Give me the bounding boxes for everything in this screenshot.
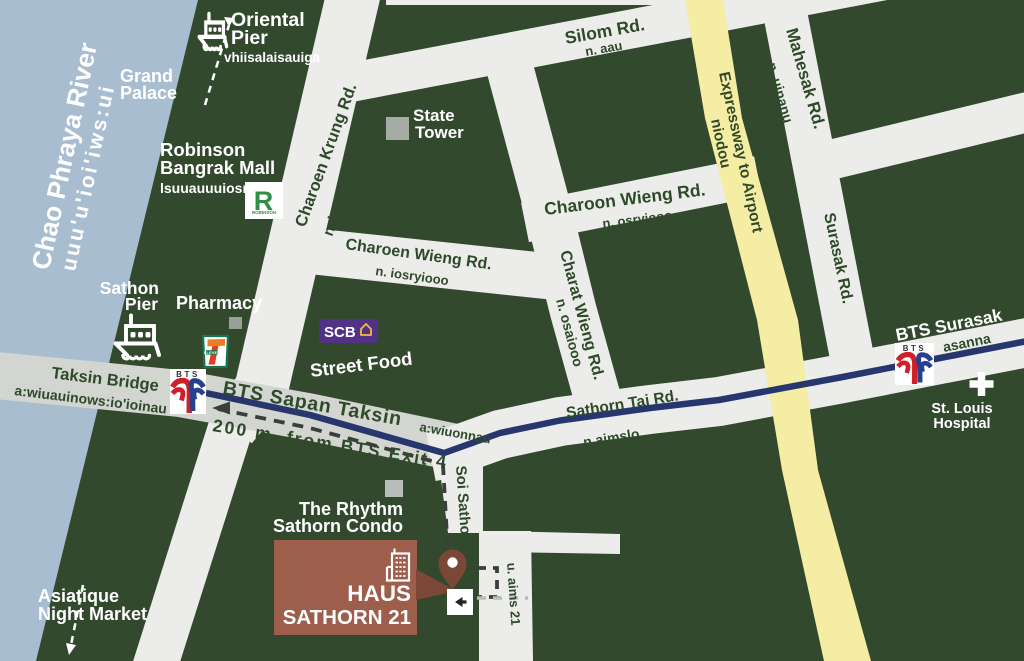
svg-text:ROBINSON: ROBINSON <box>252 210 276 215</box>
svg-text:Hospital: Hospital <box>933 416 990 432</box>
svg-text:HAUS: HAUS <box>347 581 411 606</box>
svg-text:Tower: Tower <box>415 123 464 142</box>
svg-text:BTS: BTS <box>903 344 926 353</box>
svg-text:SATHORN 21: SATHORN 21 <box>283 606 411 629</box>
svg-text:BTS: BTS <box>176 370 200 379</box>
svg-text:vhiisalaisauiga: vhiisalaisauiga <box>224 50 321 65</box>
svg-text:Pharmacy: Pharmacy <box>176 293 262 313</box>
svg-text:Bangrak Mall: Bangrak Mall <box>160 157 275 178</box>
svg-text:ELEVEn: ELEVEn <box>204 351 220 355</box>
svg-text:lsuuauuuiosn: lsuuauuuiosn <box>160 180 251 196</box>
svg-text:St. Louis: St. Louis <box>931 401 992 417</box>
svg-text:Night Market: Night Market <box>38 604 147 624</box>
svg-text:SCB: SCB <box>324 324 356 341</box>
svg-text:Pier: Pier <box>125 294 158 314</box>
svg-text:Asiatique: Asiatique <box>38 586 119 606</box>
svg-text:Palace: Palace <box>120 83 177 103</box>
svg-text:Sathorn Condo: Sathorn Condo <box>273 516 403 536</box>
svg-text:Pier: Pier <box>231 27 268 49</box>
